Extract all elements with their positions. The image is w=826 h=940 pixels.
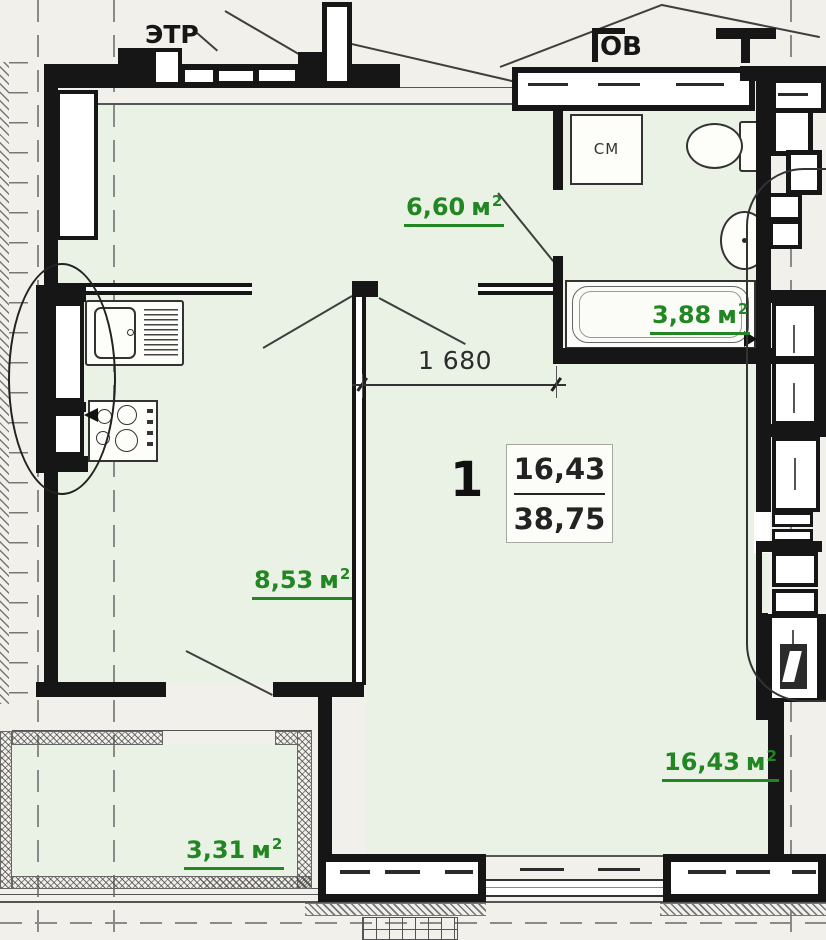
window-dash (598, 868, 640, 871)
area-unit-sup: 2 (767, 747, 777, 765)
apartment-living-area: 16,43 (507, 445, 612, 493)
threshold-line (398, 87, 514, 88)
wall-dash (385, 870, 420, 874)
wall-segment (318, 695, 332, 858)
shaft-mark (778, 93, 808, 96)
area-value: 16,43м2 (662, 748, 779, 782)
area-label-bathroom: 3,88м2 (650, 301, 750, 329)
washing-machine-label: СМ (594, 140, 619, 158)
leader-line (224, 10, 302, 57)
exterior-stair-grid (362, 917, 458, 940)
area-unit: м (471, 193, 491, 221)
area-value: 3,88м2 (650, 301, 750, 335)
parapet-step (118, 48, 152, 65)
antenna-symbol (716, 28, 776, 39)
stove-knobs (147, 409, 153, 453)
living-room-floor (366, 295, 556, 856)
shaft-break-outline (746, 168, 826, 702)
axis-line (113, 0, 115, 940)
burner (115, 429, 138, 452)
wall-dash (736, 870, 770, 874)
wall-segment (36, 682, 166, 697)
area-number: 6,60 (406, 193, 465, 221)
door-threshold (378, 283, 478, 297)
washing-machine: СМ (570, 114, 643, 185)
area-unit-sup: 2 (738, 300, 748, 318)
partition-wall (352, 293, 366, 685)
parapet-niche (152, 48, 182, 86)
window (486, 879, 663, 897)
parapet-step (298, 52, 322, 66)
bay-break-ellipse (8, 263, 116, 495)
vent-chimney (322, 2, 352, 86)
partition-pier (352, 281, 378, 297)
area-number: 3,31 (186, 836, 245, 864)
balcony-wall-hatch (0, 731, 12, 889)
bathroom-wall (553, 108, 563, 190)
dimension-text: 1 680 (395, 346, 515, 375)
parapet-niche (256, 67, 298, 84)
apartment-number: 1 (450, 452, 483, 508)
toilet-bowl (686, 123, 743, 169)
wall-dash (792, 870, 816, 874)
area-number: 3,88 (652, 301, 711, 329)
wall-segment (44, 64, 58, 290)
area-label-living-room: 16,43м2 (662, 748, 779, 776)
area-unit: м (717, 301, 737, 329)
bottom-wall-pier (663, 854, 826, 902)
area-label-hallway: 6,60м2 (404, 193, 504, 221)
area-unit: м (746, 748, 766, 776)
dimension-extension (556, 366, 557, 398)
bathroom-wall (553, 348, 775, 364)
dimension-line (352, 384, 566, 386)
door-threshold (252, 283, 352, 297)
antenna-symbol (741, 39, 750, 63)
floor-plan: СМ (0, 0, 826, 940)
balcony-wall-hatch (12, 876, 312, 889)
wall-dash (340, 870, 370, 874)
balcony-wall-hatch (297, 731, 312, 889)
dimension-extension (362, 374, 363, 398)
hall-closet-niche (56, 90, 98, 240)
burner (117, 405, 137, 425)
parapet-niche (182, 67, 216, 85)
window-recess-line (485, 855, 663, 857)
window-mullion-line (486, 887, 663, 888)
sink-drain (127, 329, 134, 336)
area-unit-sup: 2 (272, 835, 282, 853)
parapet-niche (216, 68, 256, 84)
bathroom-wall (553, 256, 563, 352)
insulation-hatch (305, 903, 486, 916)
apartment-total-area: 38,75 (507, 495, 612, 543)
window-dash (520, 868, 564, 871)
living-room-floor (553, 363, 767, 856)
wall-segment (44, 472, 58, 684)
wall-dash (688, 870, 726, 874)
top-window-block (512, 67, 755, 111)
area-value: 8,53м2 (252, 566, 352, 600)
area-value: 6,60м2 (404, 193, 504, 227)
etr-leader-line (196, 32, 218, 51)
apartment-areas-box: 16,43 38,75 (506, 444, 613, 543)
area-unit-sup: 2 (340, 565, 350, 583)
area-value: 3,31м2 (184, 836, 284, 870)
area-unit: м (319, 566, 339, 594)
direction-arrow (84, 408, 98, 422)
wall-dash (445, 870, 473, 874)
partition-wall (478, 283, 556, 295)
area-number: 8,53 (254, 566, 313, 594)
window-dash (528, 83, 568, 86)
window-dash (598, 83, 640, 86)
balcony-wall-hatch (275, 731, 298, 745)
area-unit-sup: 2 (492, 192, 502, 210)
sink-drainer (144, 309, 178, 357)
window-dash (676, 83, 724, 86)
area-label-kitchen: 8,53м2 (252, 566, 352, 594)
bottom-wall-pier (318, 854, 486, 902)
ov-label: ОВ (600, 32, 642, 62)
balcony-wall-hatch (12, 731, 163, 745)
area-label-balcony: 3,31м2 (184, 836, 284, 864)
area-number: 16,43 (664, 748, 740, 776)
wall-face-line (44, 103, 512, 105)
facade-line (0, 894, 318, 895)
shaft-box (771, 108, 813, 156)
insulation-hatch (660, 903, 826, 916)
area-unit: м (251, 836, 271, 864)
etr-label: ЭТР (145, 20, 199, 49)
top-wall (740, 66, 826, 81)
